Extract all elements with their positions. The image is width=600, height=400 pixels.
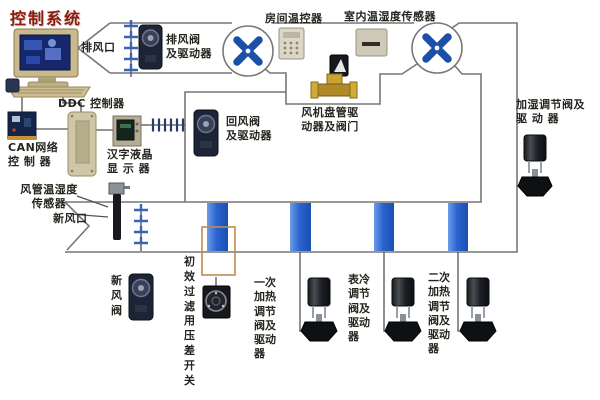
pressure-switch-device (203, 286, 230, 318)
cooling-coil-valve-actuator (385, 278, 421, 341)
indoor-sensor-device (356, 29, 387, 56)
exhaust-damper-icon (124, 20, 138, 77)
diagram-title: 控制系统 (10, 5, 82, 29)
label-primary-heating-valve: 一次加热调节阀及驱动器 (254, 276, 280, 362)
label-fresh-air-outlet: 新风口 (53, 212, 88, 226)
secondary-heating-valve-actuator (460, 278, 496, 341)
return-valve-actuator (194, 110, 218, 156)
supply-fan-icon (412, 23, 462, 73)
humidifier-valve-actuator (518, 135, 552, 196)
fresh-air-damper-icon (134, 204, 148, 251)
label-exhaust-outlet: 排风口 (81, 41, 116, 55)
label-duct-sensor: 风管温湿度 传感器 (18, 183, 80, 212)
label-fresh-air-valve: 新风阀 (111, 274, 124, 319)
label-filter-pressure-switch: 初效过滤用压差开关 (184, 255, 197, 389)
room-thermostat-device (279, 28, 304, 59)
label-exhaust-valve: 排风阀 及驱动器 (166, 33, 212, 62)
label-secondary-heating-valve: 二次加热调节阀及驱动器 (428, 271, 454, 357)
keyboard (8, 87, 90, 97)
label-can-controller: CAN网络 控 制 器 (8, 141, 58, 170)
primary-heating-valve-actuator (301, 278, 337, 341)
hvac-control-diagram: 控制系统 排风口 排风阀 及驱动器 房间温控器 室内温湿度传感器 DDC 控制器… (0, 0, 600, 400)
label-fan-coil: 风机盘管驱 动器及阀门 (298, 106, 362, 135)
exhaust-valve-actuator (139, 25, 162, 69)
duct-sensor-probe (109, 183, 130, 240)
diagram-canvas (0, 0, 600, 400)
ddc-controller-device (68, 112, 96, 176)
fan-coil-valve (311, 55, 357, 98)
can-network-controller (8, 112, 36, 140)
pipe-3 (374, 203, 394, 251)
label-humidifier-valve: 加湿调节阀及 驱 动 器 (516, 98, 585, 127)
label-return-valve: 回风阀 及驱动器 (226, 115, 272, 144)
label-ddc-controller: DDC 控制器 (58, 97, 125, 111)
pipe-2 (290, 203, 311, 251)
label-room-thermostat: 房间温控器 (265, 12, 323, 26)
label-lcd-display: 汉字液晶 显 示 器 (107, 148, 153, 177)
pipe-4 (448, 203, 468, 251)
lcd-display-device (113, 116, 141, 146)
fresh-air-valve-actuator (129, 274, 153, 320)
exhaust-fan-icon (223, 26, 273, 76)
control-computer (6, 29, 90, 97)
supply-pipes (207, 203, 468, 251)
label-cooling-coil-valve: 表冷调节阀及驱动器 (348, 273, 374, 344)
label-indoor-sensor: 室内温湿度传感器 (344, 10, 436, 24)
